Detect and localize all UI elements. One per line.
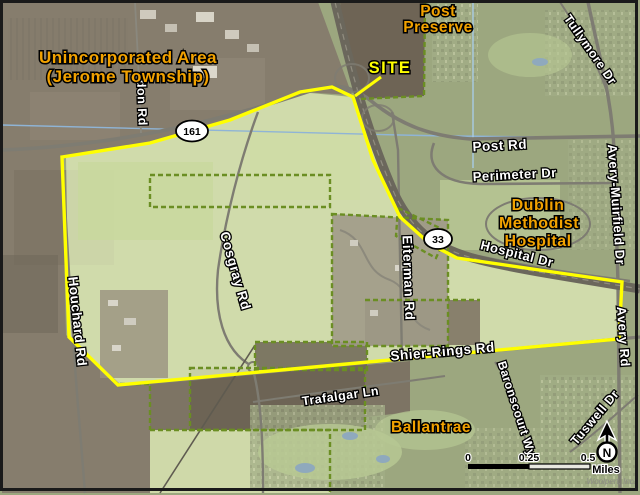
road-label-post-rd: Post Rd [472, 137, 527, 155]
field-patch [78, 162, 213, 240]
building [196, 12, 214, 22]
field-patch [250, 130, 360, 200]
building [124, 318, 136, 325]
building [108, 300, 118, 306]
field-patch [0, 255, 58, 333]
aerial-map: 161 33 don Rd Post Rd Perimeter Dr Hospi… [0, 0, 640, 495]
shield-33-text: 33 [432, 234, 444, 246]
north-arrow-label: N [603, 446, 612, 460]
scale-tick-025: 0.25 [519, 452, 540, 464]
map-credit: Woolpert, Inc. [587, 477, 636, 486]
building [165, 24, 177, 32]
building [370, 310, 378, 316]
building [225, 30, 239, 39]
shield-161-text: 161 [183, 126, 201, 138]
route-shield-161: 161 [176, 121, 208, 142]
scale-bar-solid [468, 464, 529, 469]
area-label-post-preserve-2: Preserve [403, 19, 473, 36]
scale-tick-0: 0 [465, 452, 471, 464]
building [247, 44, 259, 52]
pond [532, 58, 548, 66]
area-label-post-preserve-1: Post [420, 3, 456, 20]
pond [376, 455, 390, 463]
scale-bar-hollow [529, 464, 590, 469]
area-label-hospital-1: Dublin [512, 197, 565, 214]
building [350, 240, 358, 246]
pond [295, 463, 315, 473]
field-patch [30, 92, 120, 140]
golf-course [488, 33, 572, 77]
route-shield-33: 33 [424, 229, 452, 249]
building [140, 10, 156, 19]
building [112, 345, 121, 351]
map-viewport: 161 33 don Rd Post Rd Perimeter Dr Hospi… [0, 0, 640, 495]
road-label-eiterman-rd: Eiterman Rd [400, 235, 418, 321]
scale-units: Miles [592, 464, 620, 476]
site-label: SITE [369, 59, 412, 77]
area-label-ballantrae: Ballantrae [391, 419, 471, 436]
area-label-hospital-2: Methodist [499, 215, 579, 232]
area-label-unincorporated-1: Unincorporated Area [39, 48, 217, 67]
area-label-unincorporated-2: (Jerome Township) [46, 67, 209, 86]
pond [342, 432, 358, 440]
subdivision-east [568, 140, 638, 250]
road-label-north-partial: don Rd [134, 80, 150, 127]
scale-tick-05: 0.5 [581, 452, 596, 464]
area-label-hospital-3: Hospital [504, 233, 571, 250]
